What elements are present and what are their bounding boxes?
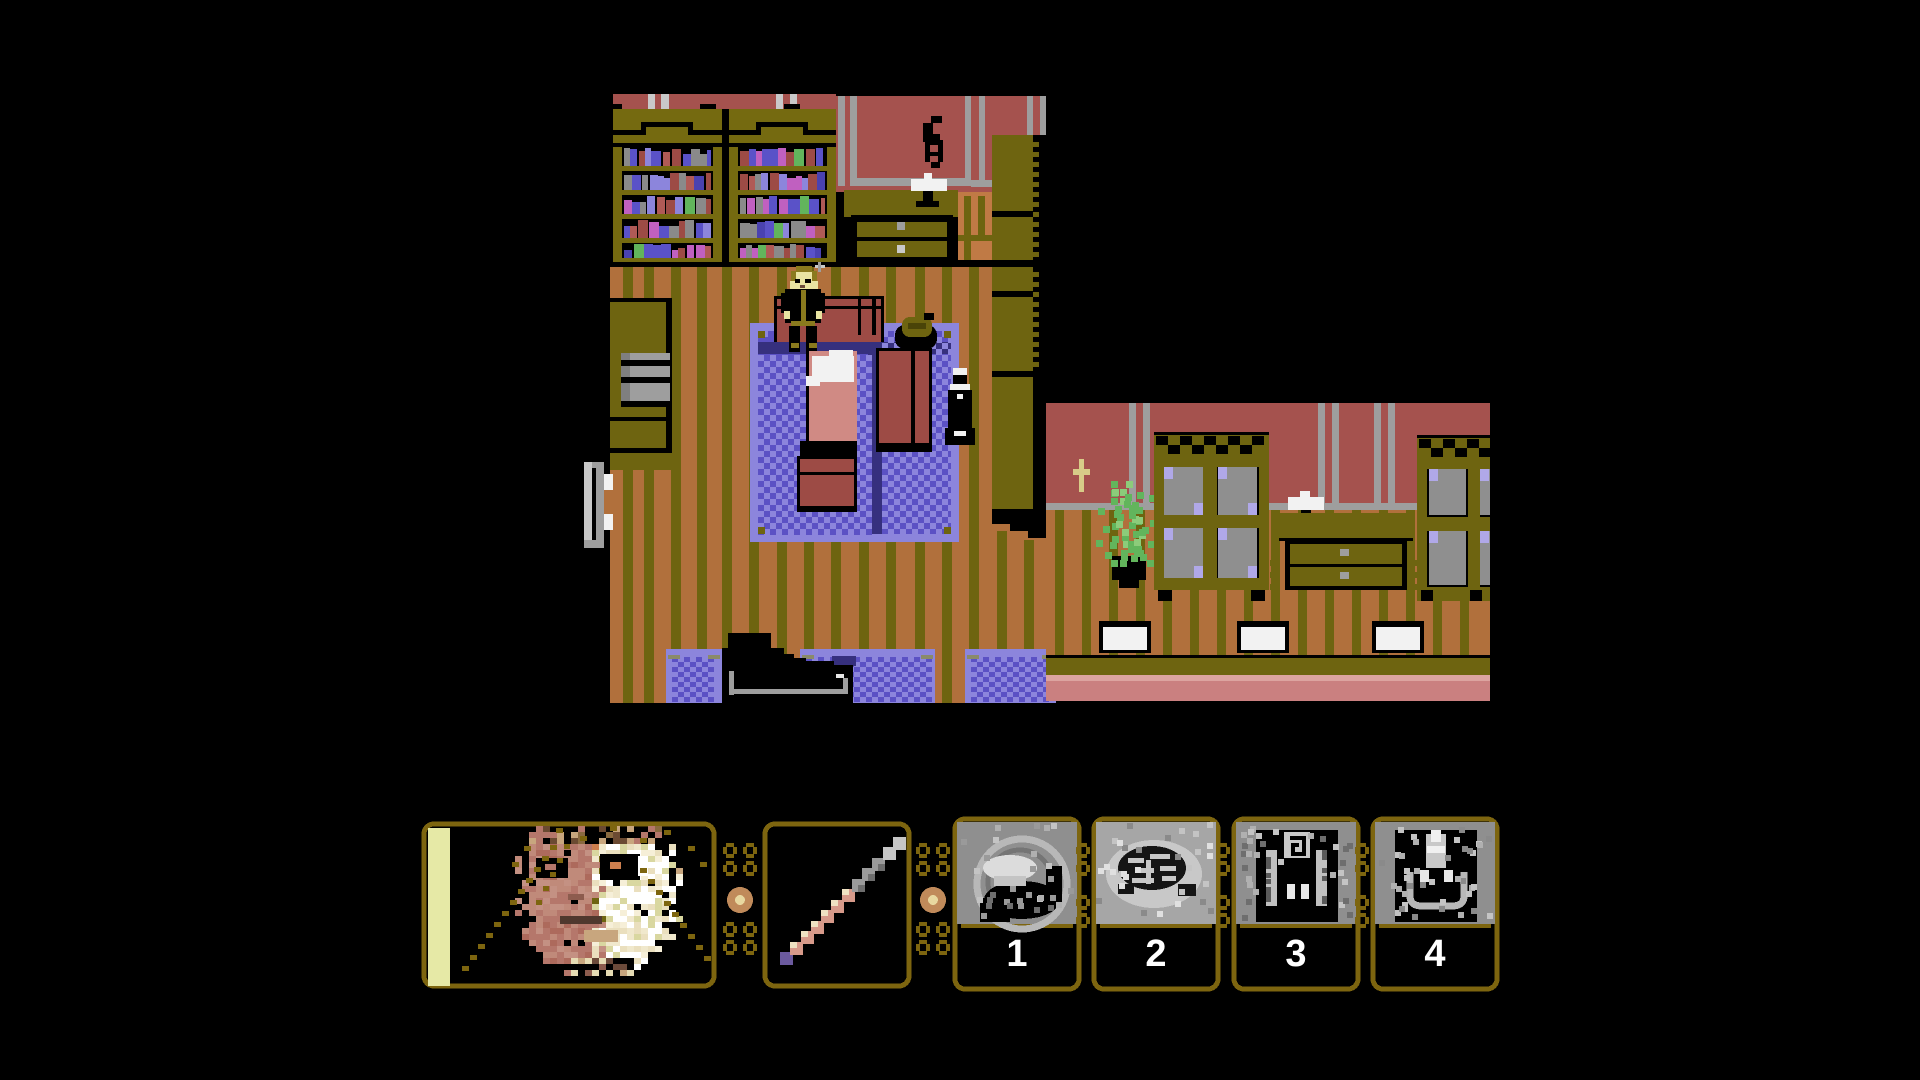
svg-text:3: 3 — [1285, 933, 1306, 975]
svg-text:2: 2 — [1145, 933, 1166, 975]
svg-text:1: 1 — [1006, 933, 1027, 975]
svg-text:4: 4 — [1424, 933, 1445, 975]
